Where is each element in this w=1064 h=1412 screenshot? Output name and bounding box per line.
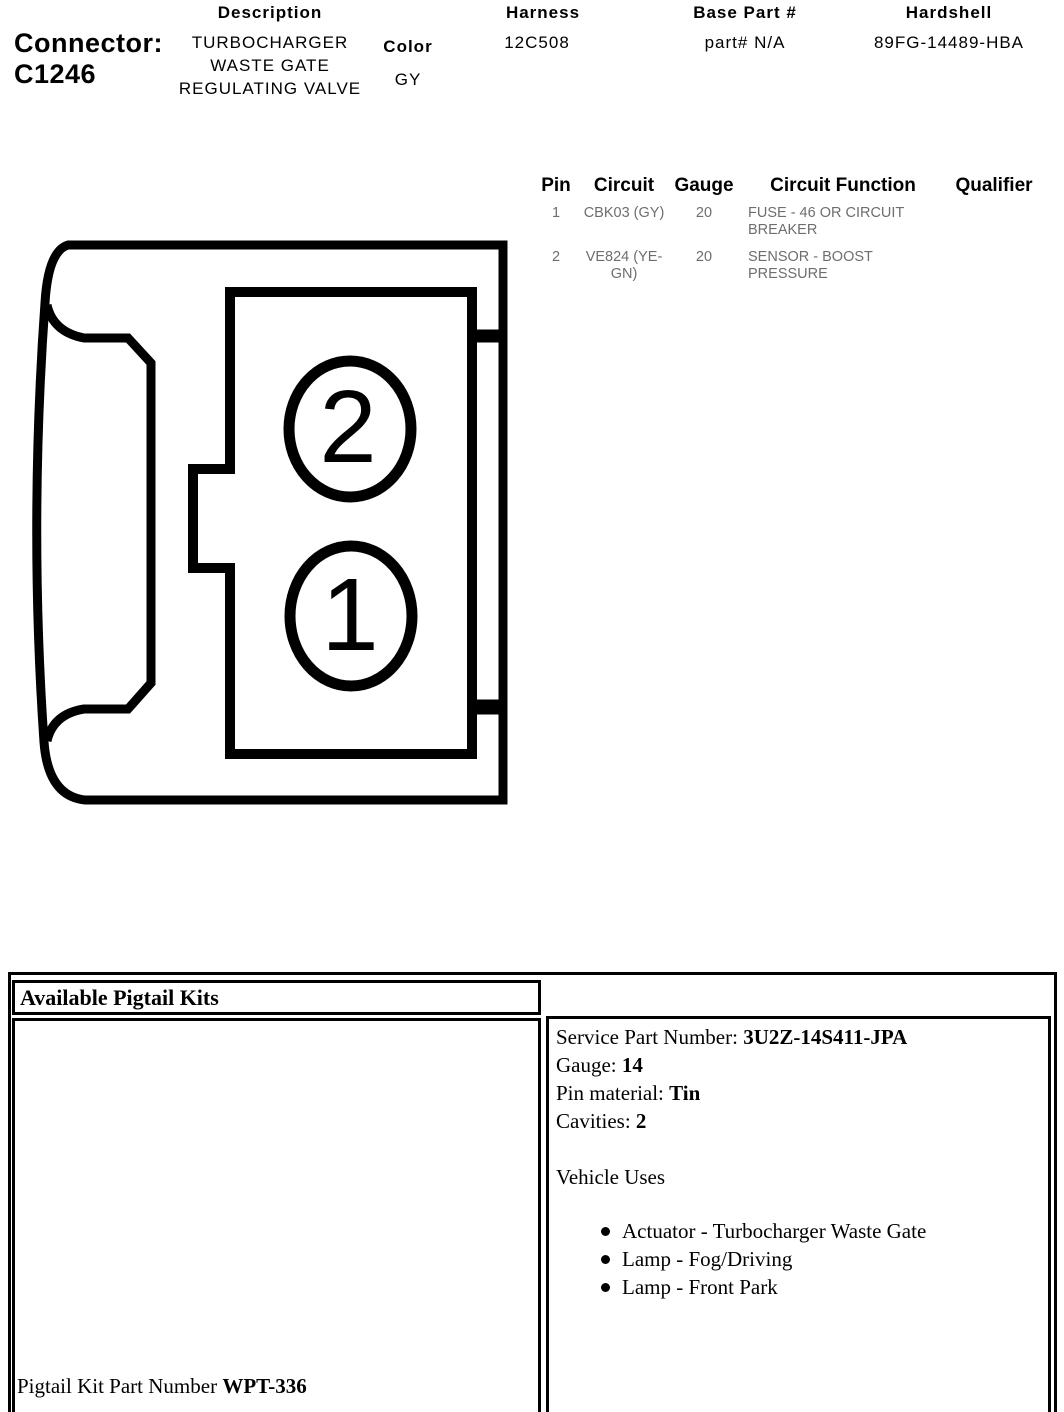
boot-collar-line (47, 305, 151, 741)
circuit-cell: CBK03 (GY) (580, 205, 668, 239)
vehicle-uses-list: Actuator - Turbocharger Waste Gate Lamp … (556, 1217, 1040, 1301)
qualifier-col-header: Qualifier (946, 176, 1042, 196)
vehicle-use-text: Lamp - Fog/Driving (622, 1247, 792, 1271)
pin-table-row: 2 VE824 (YE-GN) 20 SENSOR - BOOST PRESSU… (532, 249, 1048, 283)
cavities-label: Cavities: (556, 1109, 631, 1133)
gauge-col-header: Gauge (668, 176, 740, 196)
pin-material-value: Tin (669, 1081, 700, 1105)
pigtail-part-number-value: WPT-336 (222, 1374, 306, 1398)
vehicle-use-item: Actuator - Turbocharger Waste Gate (556, 1217, 1040, 1245)
service-info-box: Service Part Number: 3U2Z-14S411-JPA Gau… (546, 1016, 1051, 1412)
service-part-line: Service Part Number: 3U2Z-14S411-JPA (556, 1023, 1040, 1051)
pigtail-kits-title: Available Pigtail Kits (12, 980, 541, 1015)
pigtail-kits-box (12, 1018, 541, 1412)
qualifier-cell (946, 249, 1042, 283)
pin-table-row: 1 CBK03 (GY) 20 FUSE - 46 OR CIRCUIT BRE… (532, 205, 1048, 239)
pin-material-line: Pin material: Tin (556, 1079, 1040, 1107)
cavities-value: 2 (636, 1109, 647, 1133)
vehicle-use-item: Lamp - Fog/Driving (556, 1245, 1040, 1273)
base-part-label: Base Part # (675, 3, 815, 23)
function-col-header: Circuit Function (740, 176, 946, 196)
circuit-col-header: Circuit (580, 176, 668, 196)
function-cell: FUSE - 46 OR CIRCUIT BREAKER (740, 205, 946, 239)
pin-table: Pin Circuit Gauge Circuit Function Quali… (532, 176, 1048, 283)
connector-face-diagram: 2 1 (0, 0, 540, 830)
vehicle-use-item: Lamp - Front Park (556, 1273, 1040, 1301)
pin-material-label: Pin material: (556, 1081, 664, 1105)
hardshell-label: Hardshell (869, 3, 1029, 23)
gauge-cell: 20 (668, 205, 740, 239)
circuit-cell: VE824 (YE-GN) (580, 249, 668, 283)
connector-spec-page: Connector: C1246 Description TURBOCHARGE… (0, 0, 1064, 1412)
gauge-value: 14 (622, 1053, 643, 1077)
service-part-value: 3U2Z-14S411-JPA (743, 1025, 907, 1049)
pin-table-header-row: Pin Circuit Gauge Circuit Function Quali… (532, 176, 1048, 196)
function-cell: SENSOR - BOOST PRESSURE (740, 249, 946, 283)
vehicle-uses-title: Vehicle Uses (556, 1163, 1040, 1191)
hardshell-value: 89FG-14489-HBA (869, 31, 1029, 54)
gauge-label: Gauge: (556, 1053, 617, 1077)
gauge-cell: 20 (668, 249, 740, 283)
cavities-line: Cavities: 2 (556, 1107, 1040, 1135)
pin-1-number: 1 (321, 557, 378, 672)
bullet-icon (601, 1255, 610, 1264)
gauge-line: Gauge: 14 (556, 1051, 1040, 1079)
pin-2-number: 2 (319, 369, 376, 484)
vehicle-use-text: Actuator - Turbocharger Waste Gate (622, 1219, 926, 1243)
service-part-label: Service Part Number: (556, 1025, 738, 1049)
pigtail-part-number-label: Pigtail Kit Part Number (17, 1374, 217, 1398)
bullet-icon (601, 1283, 610, 1292)
housing-outline (37, 245, 503, 800)
qualifier-cell (946, 205, 1042, 239)
bullet-icon (601, 1227, 610, 1236)
base-part-value: part# N/A (675, 31, 815, 54)
pigtail-part-number-line: Pigtail Kit Part Number WPT-336 (17, 1372, 307, 1400)
vehicle-use-text: Lamp - Front Park (622, 1275, 778, 1299)
